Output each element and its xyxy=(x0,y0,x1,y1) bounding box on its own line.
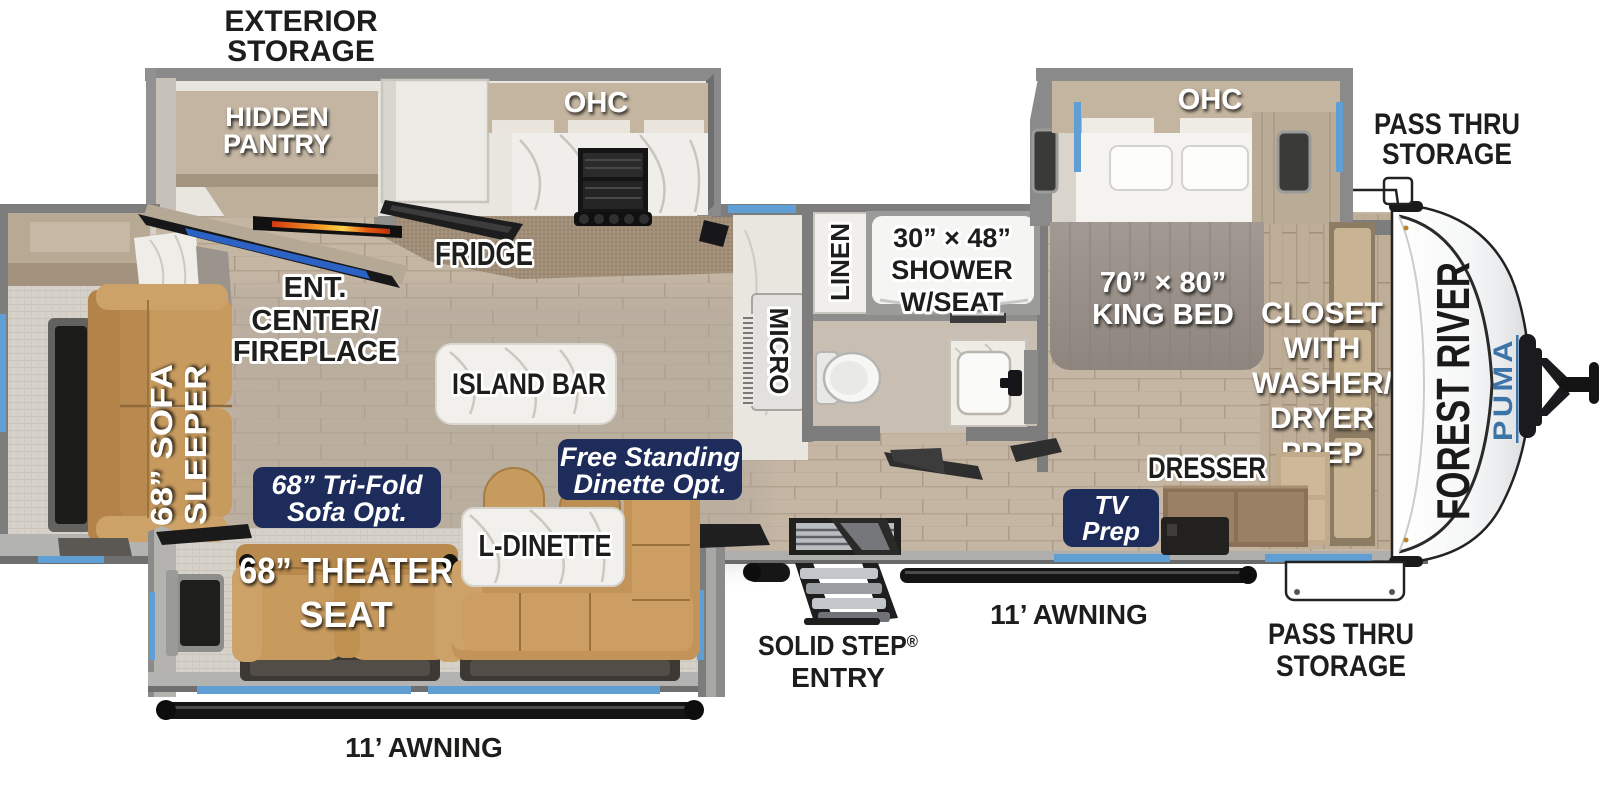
svg-text:HIDDEN: HIDDEN xyxy=(225,102,329,132)
svg-text:W/SEAT: W/SEAT xyxy=(901,287,1004,317)
svg-text:WITH: WITH xyxy=(1284,332,1361,365)
svg-text:11’ AWNING: 11’ AWNING xyxy=(345,732,503,763)
svg-text:Prep: Prep xyxy=(1082,516,1140,546)
svg-text:CENTER/: CENTER/ xyxy=(251,305,378,337)
svg-text:OHC: OHC xyxy=(564,87,629,119)
svg-text:70” × 80”: 70” × 80” xyxy=(1100,267,1227,299)
svg-text:WASHER/: WASHER/ xyxy=(1252,367,1393,400)
svg-text:DRESSER: DRESSER xyxy=(1148,452,1266,485)
svg-text:MICRO: MICRO xyxy=(764,308,794,395)
svg-text:EXTERIOR: EXTERIOR xyxy=(224,5,378,38)
svg-text:OHC: OHC xyxy=(1178,84,1243,116)
svg-text:SOLID STEP®: SOLID STEP® xyxy=(758,630,918,661)
svg-text:11’ AWNING: 11’ AWNING xyxy=(990,599,1148,630)
svg-text:FRIDGE: FRIDGE xyxy=(435,235,533,272)
svg-text:SEAT: SEAT xyxy=(299,594,392,635)
svg-text:SHOWER: SHOWER xyxy=(891,255,1013,285)
svg-text:PASS THRU: PASS THRU xyxy=(1268,618,1414,651)
svg-text:68” Tri-Fold: 68” Tri-Fold xyxy=(271,470,423,500)
svg-text:Sofa Opt.: Sofa Opt. xyxy=(287,497,407,527)
svg-text:30” × 48”: 30” × 48” xyxy=(893,223,1011,253)
svg-text:L-DINETTE: L-DINETTE xyxy=(479,528,612,563)
svg-text:Free Standing: Free Standing xyxy=(560,442,741,472)
svg-text:STORAGE: STORAGE xyxy=(227,35,375,68)
svg-text:Dinette Opt.: Dinette Opt. xyxy=(574,469,727,499)
svg-text:ENT.: ENT. xyxy=(284,272,347,304)
svg-text:FOREST RIVER: FOREST RIVER xyxy=(1427,262,1479,520)
svg-text:STORAGE: STORAGE xyxy=(1382,138,1512,171)
svg-text:DRYER: DRYER xyxy=(1270,402,1374,435)
svg-text:ISLAND BAR: ISLAND BAR xyxy=(452,368,606,401)
svg-text:FIREPLACE: FIREPLACE xyxy=(233,336,397,368)
svg-text:ENTRY: ENTRY xyxy=(791,662,885,693)
svg-text:LINEN: LINEN xyxy=(825,223,855,301)
svg-text:STORAGE: STORAGE xyxy=(1276,650,1406,683)
svg-text:SLEEPER: SLEEPER xyxy=(178,365,213,525)
svg-text:PUMA: PUMA xyxy=(1488,337,1518,441)
svg-text:PANTRY: PANTRY xyxy=(223,129,331,159)
svg-text:CLOSET: CLOSET xyxy=(1261,297,1383,330)
svg-text:PASS THRU: PASS THRU xyxy=(1374,108,1520,141)
svg-text:68” SOFA: 68” SOFA xyxy=(144,364,179,526)
svg-text:68” THEATER: 68” THEATER xyxy=(239,550,453,591)
svg-text:KING BED: KING BED xyxy=(1092,299,1234,331)
